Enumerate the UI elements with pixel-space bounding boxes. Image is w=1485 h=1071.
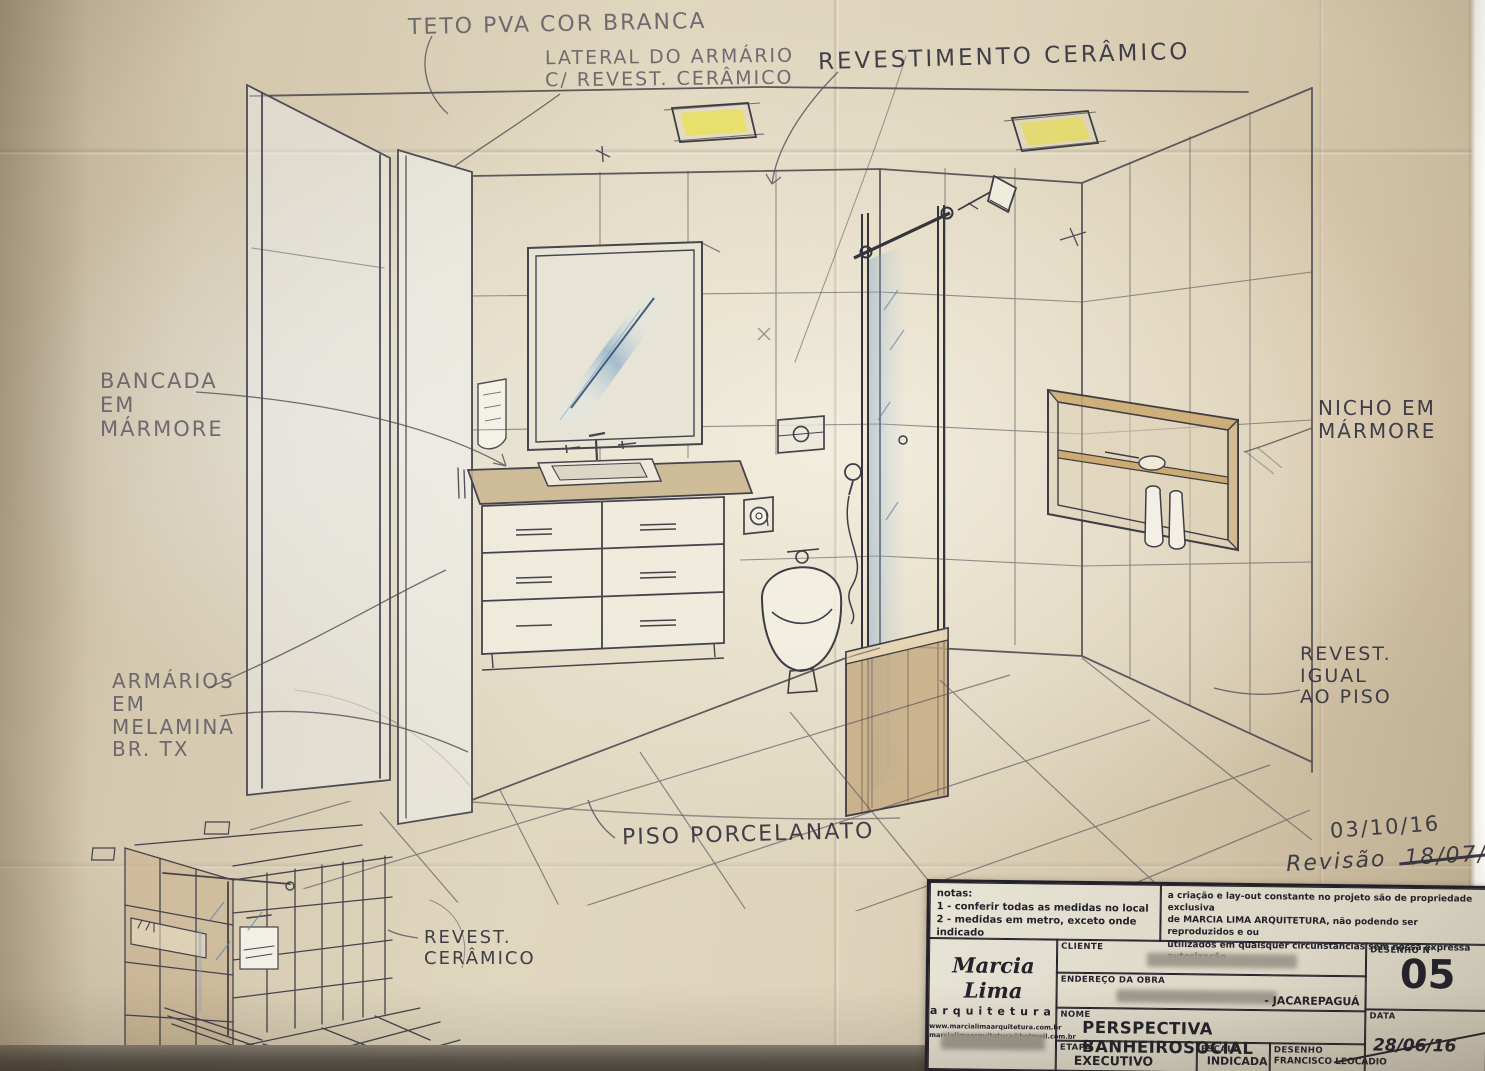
note-armarios-l1: ARMÁRIOS bbox=[112, 669, 235, 693]
flush-plate bbox=[778, 416, 824, 453]
note-nicho: NICHO EM MÁRMORE bbox=[1318, 397, 1436, 443]
note-nicho-l1: NICHO EM bbox=[1318, 396, 1436, 420]
note-revisao-date-text: 18/07/16 bbox=[1404, 840, 1485, 871]
note-revest-ceramico: REVEST. CERÂMICO bbox=[424, 928, 536, 969]
copyright-line-2: de MARCIA LIMA ARQUITETURA, não podendo … bbox=[1167, 914, 1479, 942]
desenhista-label: DESENHO bbox=[1270, 1043, 1365, 1056]
mini-sketch bbox=[92, 822, 465, 1068]
note-bancada-l3: MÁRMORE bbox=[100, 417, 224, 441]
note-revest-igual: REVEST. IGUAL AO PISO bbox=[1300, 644, 1392, 709]
desenhista-cell: DESENHO FRANCISCO LEOCÁDIO bbox=[1269, 1042, 1366, 1071]
escala-value: INDICADA bbox=[1207, 1054, 1268, 1068]
etapa-value: EXECUTIVO bbox=[1074, 1053, 1153, 1069]
note-armarios: ARMÁRIOS EM MELAMINA BR. TX bbox=[112, 670, 235, 761]
note-armarios-l3: MELAMINA bbox=[112, 715, 235, 739]
etapa-cell: ETAPA EXECUTIVO bbox=[1055, 1040, 1198, 1071]
escala-label: ESCALA bbox=[1197, 1042, 1270, 1055]
tall-cabinet-left bbox=[247, 85, 472, 824]
numero-value: 05 bbox=[1400, 952, 1456, 999]
redacted-endereco bbox=[1117, 989, 1277, 1004]
redacted-logo-address bbox=[941, 1033, 1045, 1050]
towel bbox=[478, 379, 506, 449]
note-revest-igual-l1: REVEST. bbox=[1300, 643, 1392, 665]
note-bancada: BANCADA EM MÁRMORE bbox=[100, 370, 224, 442]
note-nicho-l2: MÁRMORE bbox=[1318, 419, 1436, 443]
note-revest-ceramico-l1: REVEST. bbox=[424, 927, 512, 948]
note-lateral-l1: LATERAL DO ARMÁRIO bbox=[545, 45, 794, 70]
marble-niche bbox=[1048, 390, 1282, 550]
note-armarios-l2: EM bbox=[112, 692, 146, 716]
note-revest-igual-l2: IGUAL bbox=[1300, 665, 1368, 687]
endereco-label: ENDEREÇO DA OBRA bbox=[1057, 973, 1366, 989]
logo-name: Marcia Lima bbox=[929, 952, 1057, 1004]
note-revisao-date: 18/07/16 bbox=[1404, 840, 1485, 871]
logo-subtitle: arquitetura bbox=[929, 1004, 1056, 1019]
hand-shower bbox=[845, 464, 861, 624]
ceiling-light-right bbox=[1004, 111, 1106, 151]
note-bancada-l2: EM bbox=[100, 393, 135, 417]
ceiling-mark bbox=[596, 146, 610, 162]
note-armarios-l4: BR. TX bbox=[112, 737, 190, 761]
copyright-cell: a criação e lay-out constante no projeto… bbox=[1159, 885, 1485, 946]
toilet-paper-holder bbox=[744, 497, 773, 534]
escala-cell: ESCALA INDICADA bbox=[1196, 1041, 1271, 1071]
shower-head bbox=[958, 176, 1016, 212]
ceiling-light-left bbox=[664, 103, 764, 142]
marcia-lima-logo: Marcia Lima arquitetura www.marcialimaar… bbox=[928, 937, 1059, 1071]
redacted-cliente bbox=[1147, 953, 1297, 969]
note-bancada-l1: BANCADA bbox=[100, 369, 218, 393]
photographed-sketch-sheet: TETO PVA COR BRANCA LATERAL DO ARMÁRIO C… bbox=[0, 0, 1485, 1071]
notes-cell: notas: 1 - conferir todas as medidas no … bbox=[929, 882, 1162, 942]
data-cell: DATA 28/06/16 bbox=[1364, 1008, 1485, 1071]
mirror bbox=[528, 242, 720, 450]
toilet bbox=[762, 549, 841, 693]
title-block: notas: 1 - conferir todas as medidas no … bbox=[925, 879, 1485, 1071]
note-lateral-l2: C/ REVEST. CERÂMICO bbox=[545, 66, 794, 91]
data-label: DATA bbox=[1365, 1009, 1485, 1022]
endereco-value: - JACAREPAGUÁ bbox=[1264, 994, 1359, 1008]
numero-cell: DESENHO N° 05 bbox=[1364, 942, 1485, 1011]
note-revisao-label: Revisão bbox=[1286, 847, 1388, 877]
note-lateral-armario: LATERAL DO ARMÁRIO C/ REVEST. CERÂMICO bbox=[545, 46, 795, 92]
shower-knee-wall bbox=[846, 628, 948, 816]
note-revest-igual-l3: AO PISO bbox=[1300, 686, 1392, 708]
floor-front-line bbox=[472, 802, 900, 819]
note-revest-ceramico-l2: CERÂMICO bbox=[424, 948, 536, 969]
